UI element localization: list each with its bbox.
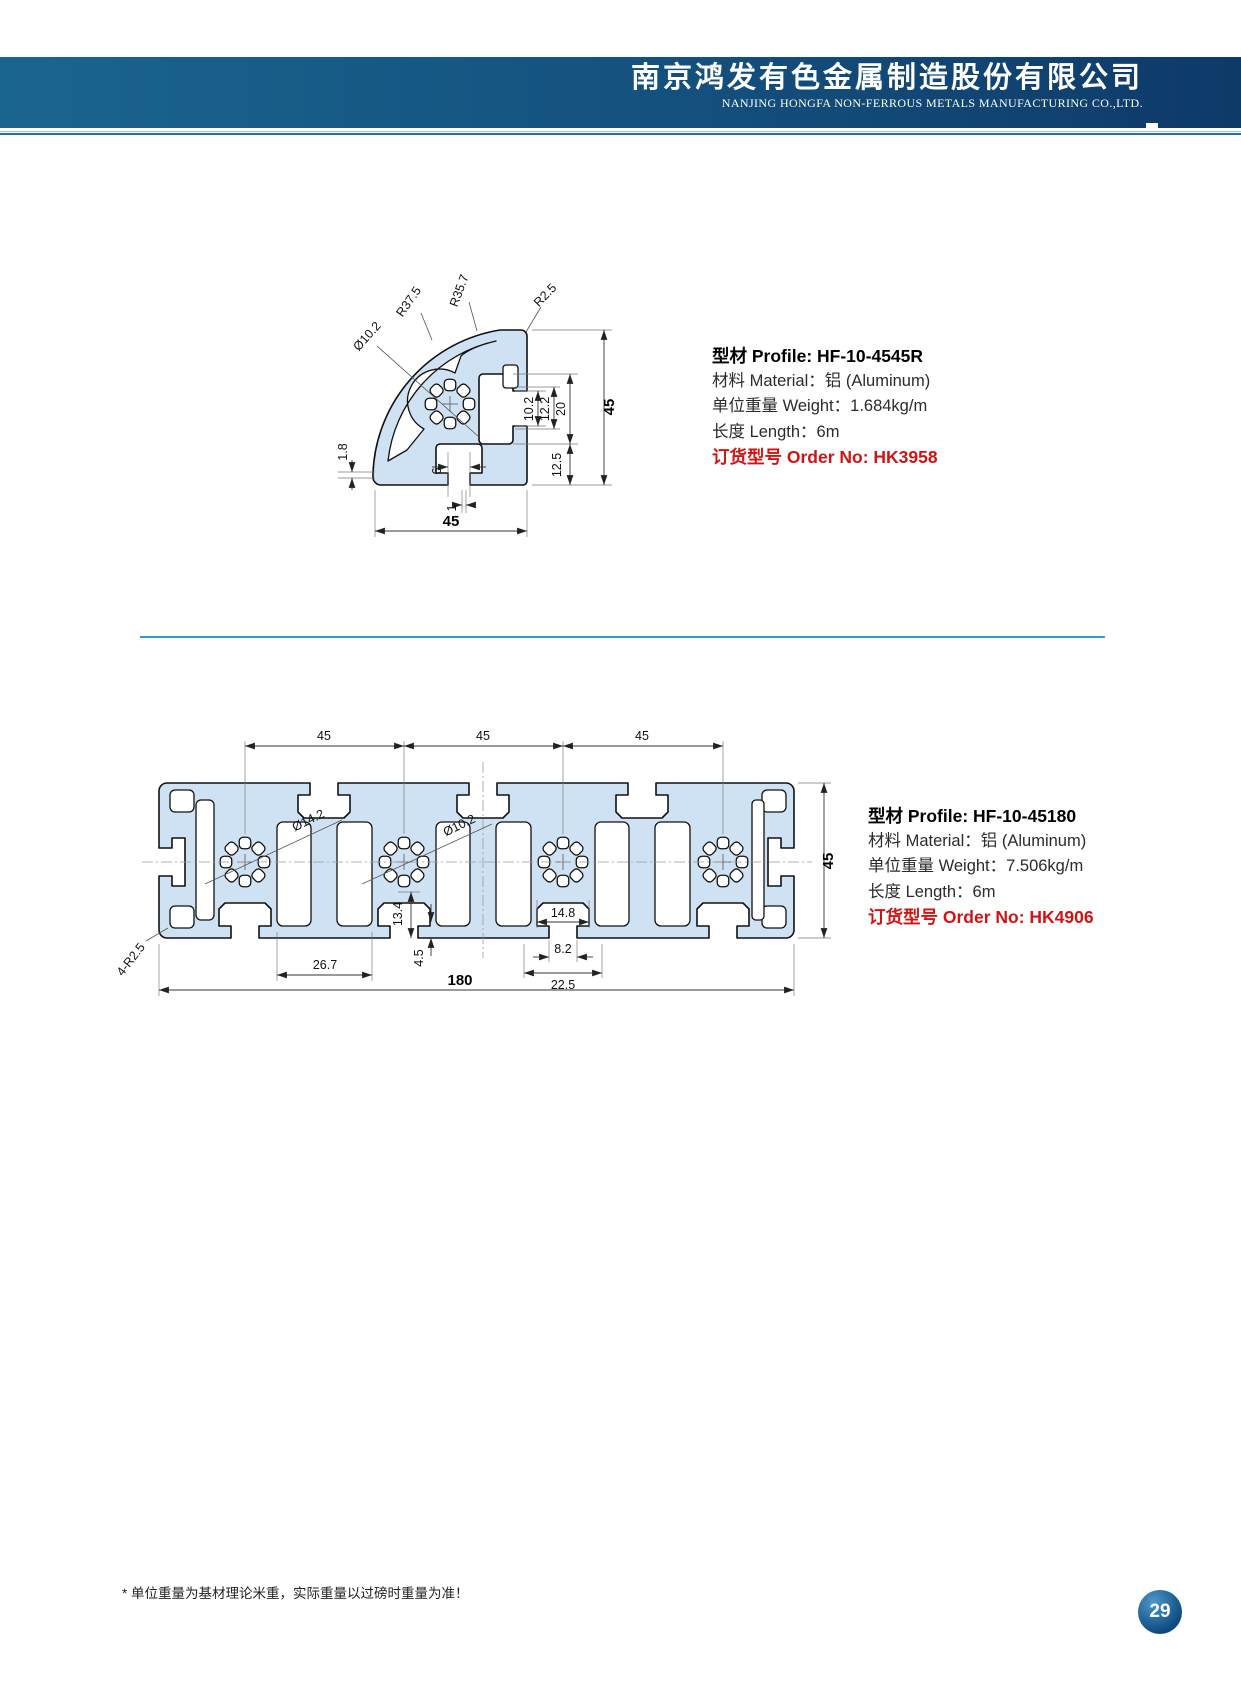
dim-label: 20 xyxy=(554,402,568,416)
dim-label: 45 xyxy=(443,513,460,530)
dim-label: R2.5 xyxy=(531,281,559,310)
profile-material: 材料 Material：铝 (Aluminum) xyxy=(712,369,938,394)
leader-r357 xyxy=(469,302,477,331)
dim-label: 45 xyxy=(635,729,649,743)
dim-label: 14.8 xyxy=(551,906,575,920)
leader-r375 xyxy=(421,313,432,340)
dim-label: 45 xyxy=(476,729,490,743)
profile2-cavity xyxy=(752,800,764,920)
dim-label: 12.5 xyxy=(550,453,564,477)
page-number: 29 xyxy=(1149,1601,1170,1623)
profile-order-no: 订货型号 Order No: HK4906 xyxy=(868,905,1094,930)
profile2-cavity xyxy=(496,822,531,926)
header-band: 南京鸿发有色金属制造股份有限公司 NANJING HONGFA NON-FERR… xyxy=(0,57,1241,128)
header-rule-dark xyxy=(0,133,1241,135)
profile2-cavity xyxy=(655,822,690,926)
dim-label: 8.2 xyxy=(554,942,571,956)
dim-label: Ø10.2 xyxy=(350,319,383,354)
profile2-corner-hole xyxy=(170,790,194,812)
profile1-corner-notch xyxy=(503,365,518,388)
profile2-cavity xyxy=(337,822,372,926)
dim-label: 10.2 xyxy=(522,397,536,421)
dim-label: 45 xyxy=(820,853,837,870)
profile-title: 型材 Profile: HF-10-4545R xyxy=(712,344,938,369)
profile2-cavity xyxy=(595,822,629,926)
dim-label: 12.2 xyxy=(538,397,552,421)
profile2-cavity xyxy=(436,822,470,926)
dim-label: R37.5 xyxy=(393,284,424,319)
spec-block-45180: 型材 Profile: HF-10-45180 材料 Material：铝 (A… xyxy=(868,804,1094,931)
dim-label: 26.7 xyxy=(313,958,337,972)
profile-order-no: 订货型号 Order No: HK3958 xyxy=(712,445,938,470)
dim-label: 13.4 xyxy=(391,902,405,926)
profile2-cavity xyxy=(277,822,311,926)
profile-material: 材料 Material：铝 (Aluminum) xyxy=(868,829,1094,854)
profile-length: 长度 Length：6m xyxy=(712,420,938,445)
dim-label: 4.5 xyxy=(412,949,426,966)
header-rule-light xyxy=(0,131,1241,132)
footer-note: * 单位重量为基材理论米重，实际重量以过磅时重量为准！ xyxy=(122,1582,469,1602)
page-number-badge: 29 xyxy=(1138,1590,1182,1634)
spec-block-4545R: 型材 Profile: HF-10-4545R 材料 Material：铝 (A… xyxy=(712,344,938,471)
profile-weight: 单位重量 Weight：7.506kg/m xyxy=(868,854,1094,879)
section-divider xyxy=(140,636,1105,638)
dim-label: 6 xyxy=(430,467,444,474)
leader-r25 xyxy=(526,307,541,332)
dim-label: 1 xyxy=(445,504,459,511)
profile2-cavity xyxy=(196,800,214,920)
dim-label: 45 xyxy=(317,729,331,743)
dim-label: 1.8 xyxy=(336,443,350,460)
profile1-center-bore xyxy=(425,379,475,429)
profile2-corner-hole xyxy=(762,906,786,928)
dim-label: 45 xyxy=(601,399,618,416)
company-name-zh: 南京鸿发有色金属制造股份有限公司 xyxy=(631,61,1143,95)
company-name-en: NANJING HONGFA NON-FERROUS METALS MANUFA… xyxy=(631,95,1143,111)
profile-drawing-45180: 45 45 45 Ø14.2 Ø10.2 45 14.8 13.4 4.5 26… xyxy=(110,650,850,1010)
dim-label: 4-R2.5 xyxy=(114,940,148,978)
dim-label: 180 xyxy=(447,972,472,989)
profile2-corner-hole xyxy=(170,906,194,928)
profile2-corner-hole xyxy=(762,790,786,812)
profile-drawing-4545R: R37.5 R35.7 R2.5 Ø10.2 45 45 10.2 12.2 2… xyxy=(320,240,640,560)
dim-label: R35.7 xyxy=(447,273,472,309)
profile-length: 长度 Length：6m xyxy=(868,880,1094,905)
profile-weight: 单位重量 Weight：1.684kg/m xyxy=(712,394,938,419)
profile-title: 型材 Profile: HF-10-45180 xyxy=(868,804,1094,829)
